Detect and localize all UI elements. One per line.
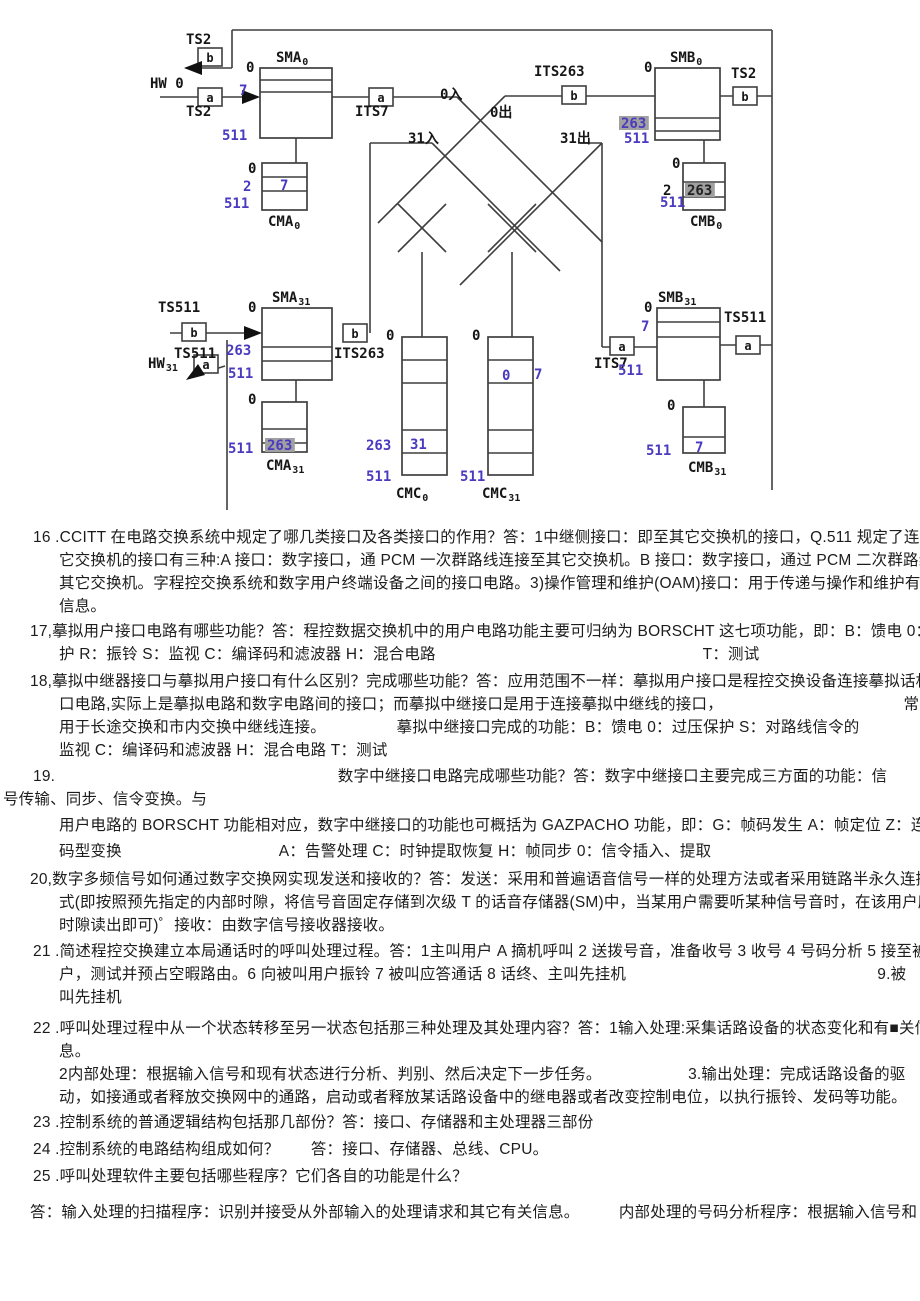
diagram-label: CMA31: [266, 458, 304, 476]
diagram-label: 263: [267, 438, 292, 454]
diagram-label: 0: [502, 368, 510, 384]
text-line: 2内部处理：根据输入信号和现有状态进行分析、判别、然后决定下一步任务。 3.输出…: [59, 1064, 906, 1086]
text-line: 动，如接通或者释放交换网中的通路，启动或者释放某话路设备中的继电器或者改变控制电…: [59, 1087, 907, 1109]
diagram-wire: [398, 96, 505, 203]
text-line: 其它交换机。字程控交换系统和数字用户终端设备之间的接口电路。3)操作管理和维护(…: [59, 573, 920, 595]
block-sma31: [262, 308, 332, 380]
diagram-label: SMB31: [658, 290, 696, 308]
diagram-label: 0: [248, 392, 256, 408]
diagram-label: 511: [366, 469, 391, 485]
diagram-label: 0: [672, 156, 680, 172]
text-line: 码型变换 A：告警处理 C：时钟提取恢复 H：帧同步 0：信令插入、提取: [59, 841, 711, 863]
diagram-label: CMA0: [268, 214, 300, 232]
port-box-label: a: [377, 91, 384, 105]
text-line: 息。: [59, 1041, 90, 1063]
diagram-label: 7: [239, 83, 247, 99]
diagram-label: 31入: [408, 131, 439, 147]
diagram-label: 511: [224, 196, 249, 212]
diagram-label: 7: [280, 178, 288, 194]
document-page: baabbbabaaTS2HW 0TS2SMA0ITS70入0出31入31出IT…: [0, 0, 920, 1301]
text-line: 22 .呼叫处理过程中从一个状态转移至另一状态包括那三种处理及其处理内容？答：1…: [33, 1018, 920, 1040]
diagram-label: TS2: [186, 32, 211, 48]
diagram-label: TS2: [731, 66, 756, 82]
diagram-label: 31: [410, 437, 427, 453]
diagram-label: 0: [248, 300, 256, 316]
port-box-label: b: [190, 326, 197, 340]
diagram-label: CMB0: [690, 214, 722, 232]
text-line: 用户电路的 BORSCHT 功能相对应，数字中继接口的功能也可概括为 GAZPA…: [59, 815, 920, 837]
diagram-wire: [457, 97, 602, 242]
block-cmb31: [683, 407, 725, 453]
switching-network-diagram: baabbbabaaTS2HW 0TS2SMA0ITS70入0出31入31出IT…: [0, 0, 920, 520]
diagram-label: TS511: [158, 300, 200, 316]
diagram-label: 0出: [490, 104, 512, 121]
text-line: 口电路,实际上是摹拟电路和数字电路间的接口；而摹拟中继接口是用于连接摹拟中继线的…: [59, 694, 919, 716]
diagram-label: SMB0: [670, 50, 702, 68]
diagram-label: 511: [624, 131, 649, 147]
port-box-label: a: [618, 340, 625, 354]
diagram-label: CMC31: [482, 486, 520, 504]
port-box-label: b: [741, 90, 748, 104]
diagram-label: 263: [687, 183, 712, 199]
text-line: 式(即按照预先指定的内部时隙，将信号音固定存储到次级 T 的话音存储器(SM)中…: [59, 892, 920, 914]
text-line: 户，测试并预占空暇路由。6 向被叫用户振铃 7 被叫应答通话 8 话终、主叫先挂…: [59, 964, 906, 986]
diagram-label: 0: [472, 328, 480, 344]
port-box-label: b: [351, 327, 358, 341]
diagram-label: SMA0: [276, 50, 308, 68]
diagram-label: 511: [460, 469, 485, 485]
arrow-into-sma31: [244, 326, 262, 340]
diagram-label: TS2: [186, 104, 211, 120]
diagram-label: 511: [222, 128, 247, 144]
block-sma0: [260, 68, 332, 138]
text-line: 时隙读出即可)゜接收：由数字信号接收器接收。: [59, 915, 394, 937]
text-line: 21 .简述程控交换建立本局通话时的呼叫处理过程。答：1主叫用户 A 摘机呼叫 …: [33, 941, 920, 963]
diagram-label: 0: [644, 300, 652, 316]
port-box-label: a: [206, 91, 213, 105]
port-box-label: a: [744, 339, 751, 353]
diagram-wire: [378, 203, 398, 223]
text-line: 19. 数字中继接口电路完成哪些功能？答：数字中继接口主要完成三方面的功能：信: [33, 766, 887, 788]
text-line: 24 .控制系统的电路结构组成如何？ 答：接口、存储器、总线、CPU。: [33, 1139, 548, 1161]
diagram-label: CMB31: [688, 460, 726, 478]
diagram-label: TS511: [174, 346, 216, 362]
diagram-label: SMA31: [272, 290, 310, 308]
diagram-wire: [460, 143, 602, 285]
text-line: 号传输、同步、信令变换。与: [3, 789, 207, 811]
block-cmc0: [402, 337, 447, 475]
text-line: 信息。: [59, 596, 106, 618]
diagram-label: 263: [621, 116, 646, 132]
text-line: 叫先挂机: [59, 987, 122, 1009]
diagram-label: CMC0: [396, 486, 428, 504]
text-line: 23 .控制系统的普通逻辑结构包括那几部份？答：接口、存储器和主处理器三部份: [33, 1112, 593, 1134]
diagram-label: 0入: [440, 87, 462, 103]
port-box-label: b: [206, 51, 213, 65]
diagram-label: 7: [695, 440, 703, 456]
text-line: 它交换机的接口有三种:A 接口：数字接口，通 PCM 一次群路线连接至其它交换机…: [59, 550, 920, 572]
diagram-label: 0: [667, 398, 675, 414]
diagram-label: 511: [646, 443, 671, 459]
diagram-label: ITS263: [534, 64, 585, 80]
text-line: 答：输入处理的扫描程序：识别并接受从外部输入的处理请求和其它有关信息。 内部处理…: [30, 1202, 917, 1224]
diagram-label: 511: [618, 363, 643, 379]
diagram-label: 0: [644, 60, 652, 76]
block-smb31: [657, 308, 720, 380]
diagram-label: 7: [534, 367, 542, 383]
diagram-label: 0: [246, 60, 254, 76]
block-smb0: [655, 68, 720, 140]
diagram-label: 263: [226, 343, 251, 359]
block-cmc31: [488, 337, 533, 475]
diagram-label: TS511: [724, 310, 766, 326]
diagram-label: 7: [641, 319, 649, 335]
diagram-label: 511: [660, 195, 685, 211]
diagram-wire: [432, 143, 560, 271]
text-line: 监视 C：编译码和滤波器 H：混合电路 T：测试: [59, 740, 388, 762]
text-line: 18,摹拟中继器接口与摹拟用户接口有什么区别？完成哪些功能？答：应用范围不一样：…: [30, 671, 920, 693]
diagram-label: 511: [228, 366, 253, 382]
diagram-label: 263: [366, 438, 391, 454]
diagram-label: ITS7: [355, 104, 389, 120]
text-line: 20,数字多频信号如何通过数字交换网实现发送和接收的？答：发送：采用和普遍语音信…: [30, 869, 920, 891]
diagram-label: 0: [386, 328, 394, 344]
diagram-label: 0: [248, 161, 256, 177]
diagram-label: HW 0: [150, 76, 184, 92]
text-line: 护 R：振铃 S：监视 C：编译码和滤波器 H：混合电路 T：测试: [59, 644, 759, 666]
diagram-label: 31出: [560, 130, 591, 147]
diagram-label: 2: [243, 179, 251, 195]
text-line: 25 .呼叫处理软件主要包括哪些程序？它们各自的功能是什么？: [33, 1166, 468, 1188]
diagram-label: 511: [228, 441, 253, 457]
diagram-label: ITS263: [334, 346, 385, 362]
text-line: 用于长途交换和市内交换中继线连接。 摹拟中继接口完成的功能：B：馈电 0：过压保…: [59, 717, 859, 739]
port-box-label: b: [570, 89, 577, 103]
text-line: 17,摹拟用户接口电路有哪些功能？答：程控数据交换机中的用户电路功能主要可归纳为…: [30, 621, 920, 643]
text-line: 16 .CCITT 在电路交换系统中规定了哪几类接口及各类接口的作用？答：1中继…: [33, 527, 920, 549]
arrow-left-hw0: [184, 61, 202, 75]
